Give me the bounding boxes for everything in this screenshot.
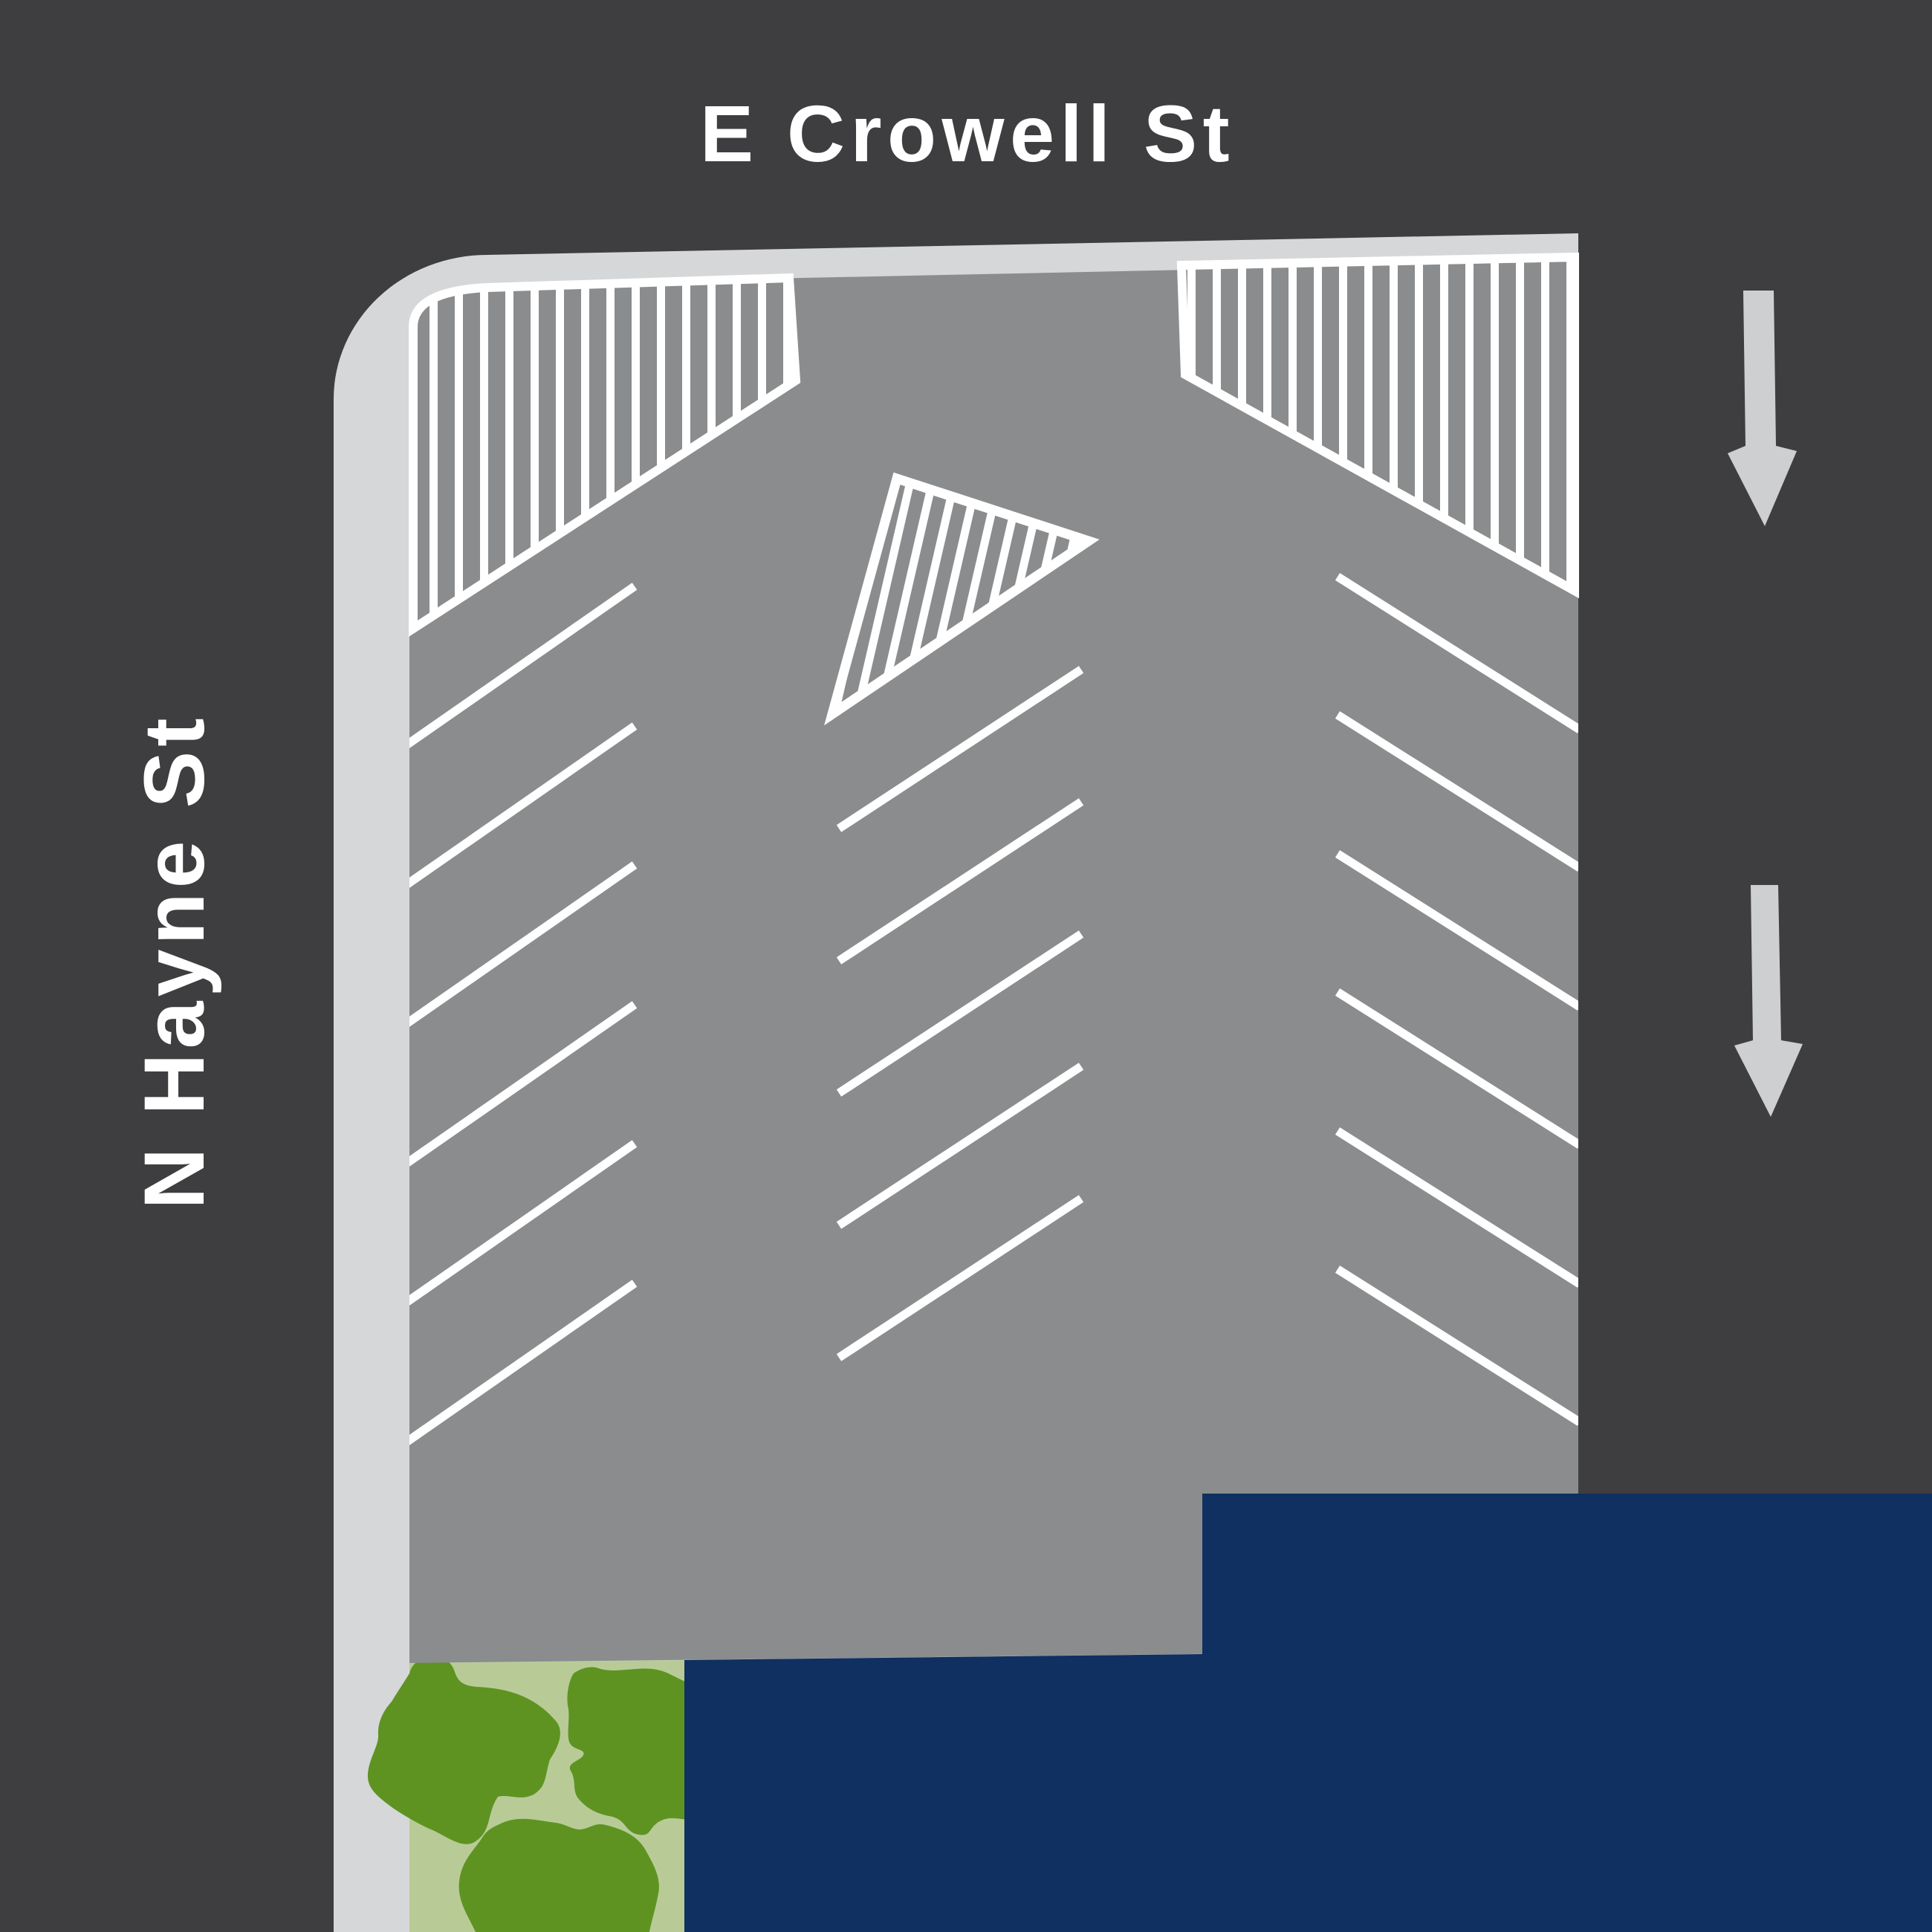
svg-text:E Crowell St: E Crowell St [700, 88, 1235, 178]
svg-text:N Hayne St: N Hayne St [127, 713, 222, 1209]
